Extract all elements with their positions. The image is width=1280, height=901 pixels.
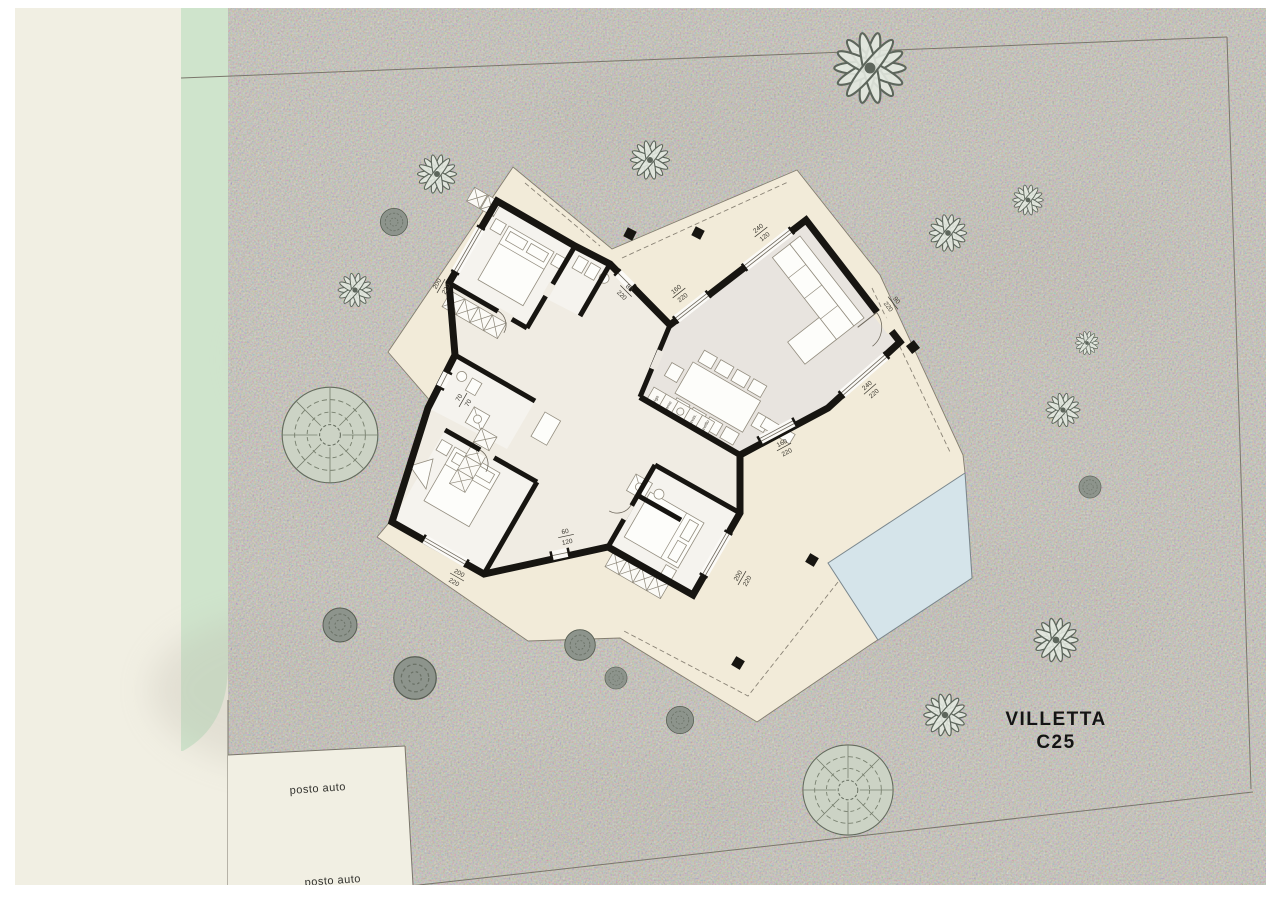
site-plan-page: { "title": { "line1": "VILLETTA", "line2… [0,0,1280,901]
bush-icon [605,667,627,689]
bush-icon [666,706,693,733]
site-plan-drawing: posto auto posto auto [0,0,1280,901]
bush-icon [565,630,596,661]
tree-icon [803,745,893,835]
plan-title-line1: VILLETTA [1005,709,1106,730]
tree-icon [282,387,378,483]
plan-title-line2: C25 [1036,732,1075,753]
bush-icon [394,657,437,700]
parking-area [228,746,413,885]
bush-icon [380,208,407,235]
bush-icon [323,608,357,642]
bush-icon [1079,476,1101,498]
